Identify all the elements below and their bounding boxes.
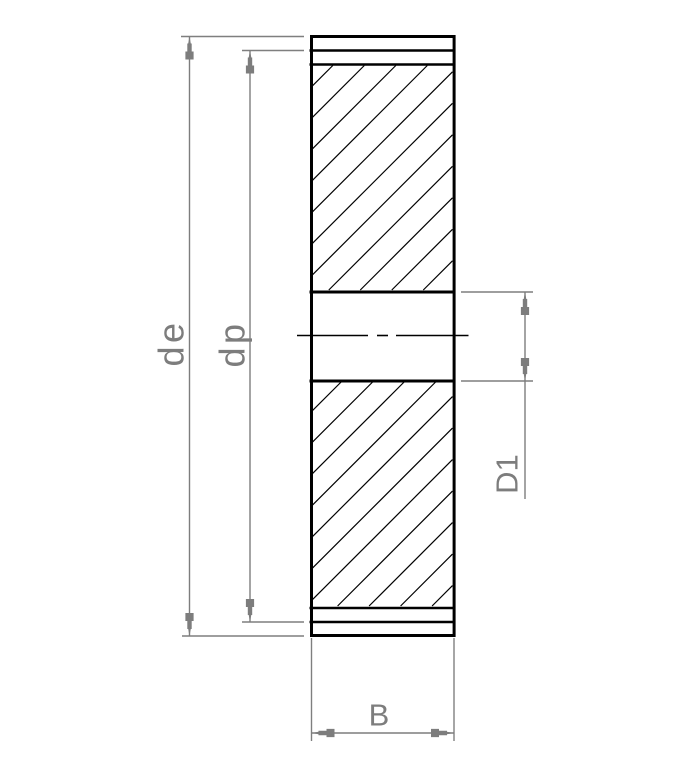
svg-text:dp: dp — [212, 320, 253, 367]
svg-text:D1: D1 — [490, 454, 525, 494]
svg-text:B: B — [369, 698, 390, 733]
svg-text:de: de — [151, 319, 192, 366]
